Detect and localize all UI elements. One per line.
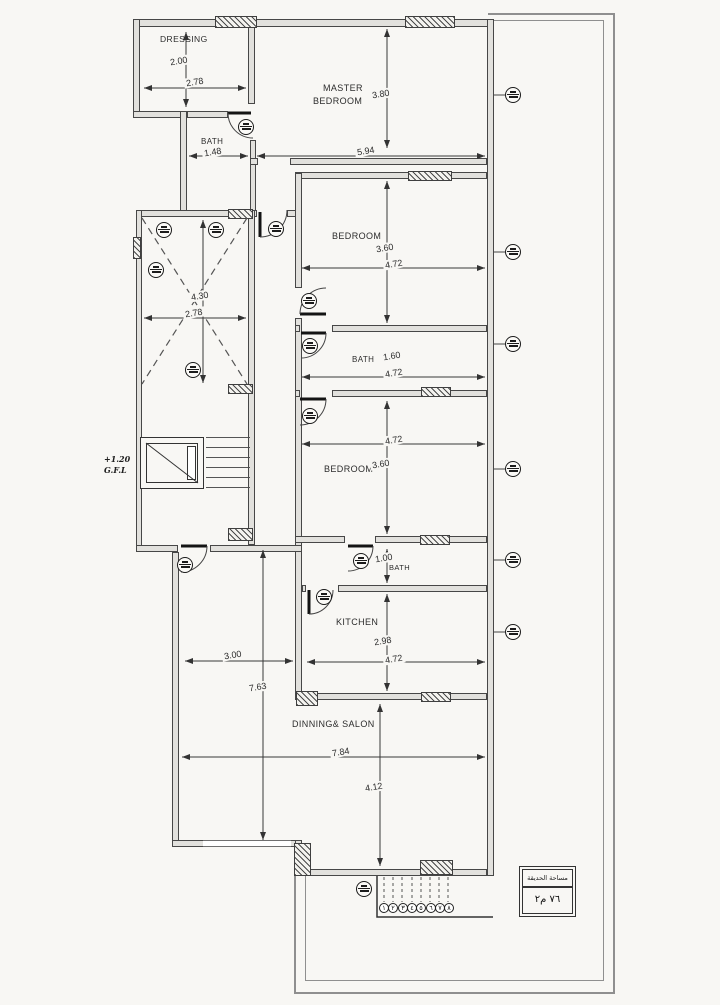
fixture-tag-icon xyxy=(185,362,201,378)
fixture-tag-icon xyxy=(208,222,224,238)
entrance-step-number: ٢ xyxy=(388,903,398,913)
level-note-value: +1.20 xyxy=(104,454,130,465)
fixture-tag-icon xyxy=(148,262,164,278)
window-tag-icon xyxy=(505,624,521,640)
room-label-dressing: DRESSING xyxy=(160,34,208,44)
door-tag-icon xyxy=(356,881,372,897)
door-leaves xyxy=(181,113,373,614)
door-tag-icon xyxy=(177,557,193,573)
room-label-kitchen: KITCHEN xyxy=(336,617,378,627)
fixture-tag-icon xyxy=(156,222,172,238)
window-tag-icon xyxy=(505,244,521,260)
tag-leader-lines xyxy=(494,95,505,632)
window-tag-icon xyxy=(505,461,521,477)
door-tag-icon xyxy=(353,553,369,569)
level-note: +1.20 G.F.L xyxy=(104,454,130,476)
door-tag-icon xyxy=(238,119,254,135)
room-label-bath-small: BATH xyxy=(389,563,410,572)
room-label-bath-mid: BATH xyxy=(352,355,374,364)
entrance-step-number: ٥ xyxy=(416,903,426,913)
dimension-lines xyxy=(144,29,485,866)
level-note-datum: G.F.L xyxy=(104,465,130,476)
room-label-bedroom-2: BEDROOM xyxy=(324,464,373,474)
door-tag-icon xyxy=(268,221,284,237)
room-label-dining-salon: DINNING& SALON xyxy=(292,719,375,729)
room-label-master-bedroom-line1: MASTER xyxy=(323,83,363,93)
floor-plan-sheet: ١ ٢ ٣ ٤ ٥ ٦ ٧ ٨ xyxy=(0,0,720,1005)
door-tag-icon xyxy=(301,293,317,309)
room-label-bedroom-1: BEDROOM xyxy=(332,231,381,241)
elevator-diagonal xyxy=(146,443,198,483)
window-tag-icon xyxy=(505,87,521,103)
door-tag-icon xyxy=(316,589,332,605)
window-tag-icon xyxy=(505,552,521,568)
room-label-master-bedroom-line2: BEDROOM xyxy=(313,96,362,106)
entrance-stair-treads xyxy=(384,877,448,902)
door-swing-arcs xyxy=(181,113,373,614)
entrance-step-number: ٨ xyxy=(444,903,454,913)
window-tag-icon xyxy=(505,336,521,352)
door-tag-icon xyxy=(302,408,318,424)
door-tag-icon xyxy=(302,338,318,354)
